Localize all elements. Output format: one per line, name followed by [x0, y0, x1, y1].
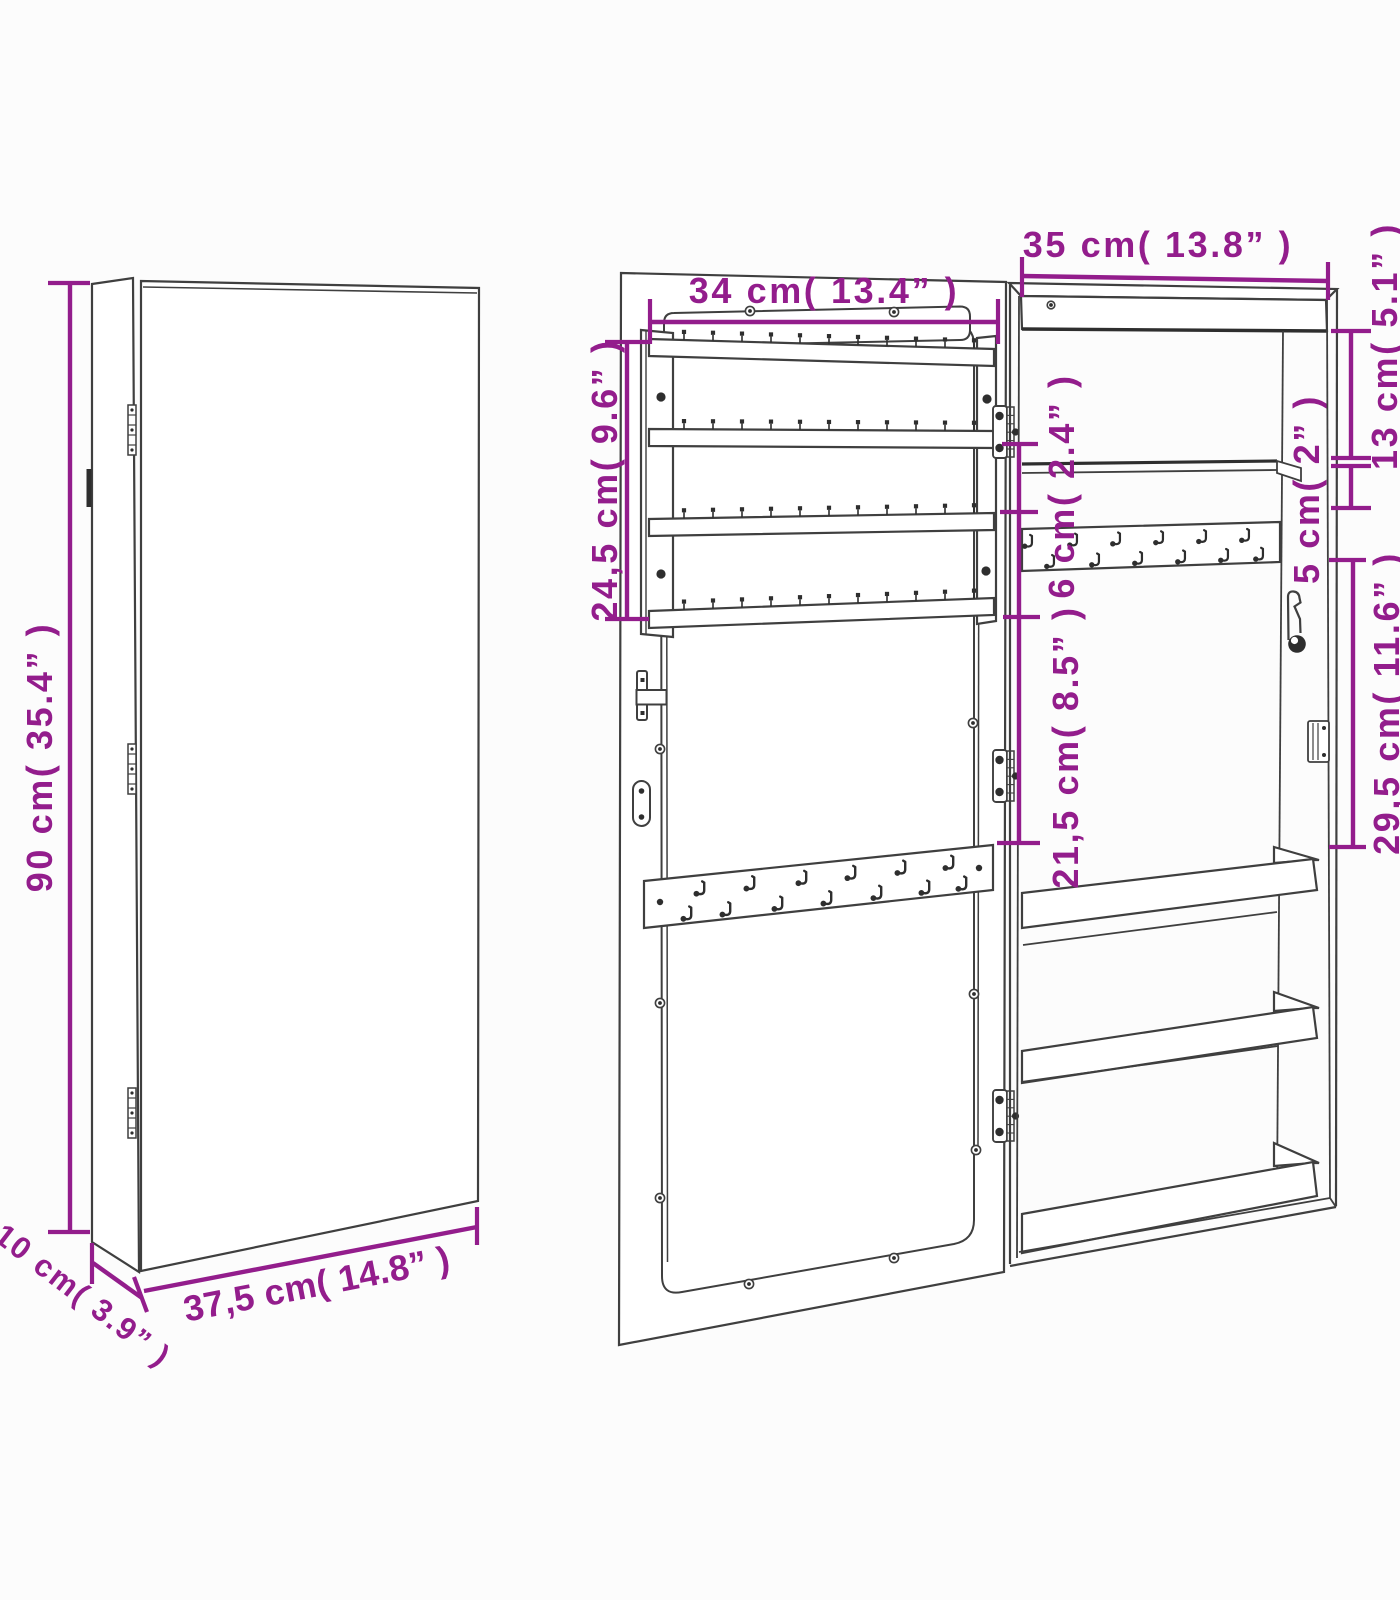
svg-text:13 cm( 5.1” ): 13 cm( 5.1” )	[1364, 222, 1400, 470]
svg-text:35 cm( 13.8” ): 35 cm( 13.8” )	[1023, 224, 1294, 265]
svg-text:34 cm( 13.4” ): 34 cm( 13.4” )	[689, 270, 960, 311]
svg-text:29,5 cm( 11.6” ): 29,5 cm( 11.6” )	[1366, 551, 1400, 855]
svg-text:6 cm( 2.4” ): 6 cm( 2.4” )	[1041, 373, 1082, 598]
svg-text:24,5 cm( 9.6” ): 24,5 cm( 9.6” )	[584, 338, 625, 621]
svg-text:5 cm( 2” ): 5 cm( 2” )	[1286, 394, 1327, 584]
svg-text:90 cm( 35.4” ): 90 cm( 35.4” )	[19, 622, 60, 893]
svg-text:21,5 cm( 8.5” ): 21,5 cm( 8.5” )	[1045, 605, 1086, 888]
